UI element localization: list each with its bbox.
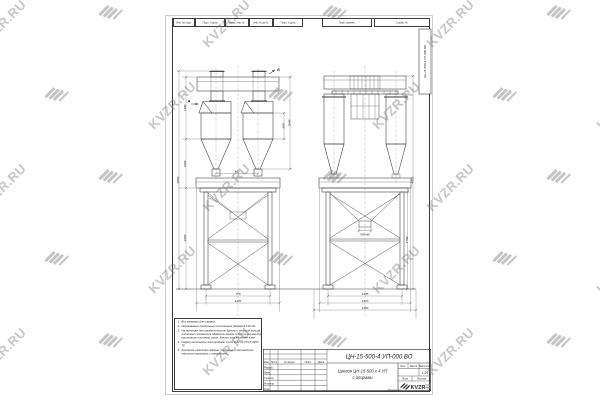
tb-row-utv: Утв. [264,388,270,391]
dim-front-right-upper: 580 [281,123,285,128]
format-label: Формат А3 [388,389,468,395]
tb-designation: ЦН-15-500-4 УП-000 ВО [346,355,413,361]
dim-front-left-2: 1090 [183,160,187,167]
front-view-dims: 1380 1090 2250 4850 580 2040 440 770 117… [176,67,292,312]
dim-front-center: 440 [235,169,240,173]
centerlines [334,66,396,316]
dim-side-hopper-outlet: 850×60 [360,233,370,237]
note-item: 5.Контроль качества сварных соединений п… [177,349,263,356]
section-label-a: А [187,99,191,104]
tb-scale-value: 1:25 [422,371,429,375]
title-block: Изм. Лист № докум. Подп. Дата Разраб. Пр… [263,349,431,391]
centerlines [216,66,258,316]
dim-front-bottom-1: 770 [235,292,240,296]
dim-side-overall: 4850 [410,176,414,183]
tb-mass-label: Масса [410,365,418,368]
watermark-logo-icon [546,331,569,354]
dim-front-left-1: 1380 [183,104,187,111]
tb-col-data: Дата [317,361,325,364]
tb-lit-label: Лит. [399,365,406,368]
tb-col-izm: Изм. [264,361,270,364]
note-item: 3.На монтаже для герметичности бункер и … [177,329,263,340]
notes-box: 1.Все размеры для справок.2.Неуказанные … [174,318,262,390]
tb-row-tkontr: Т.контр. [264,377,274,380]
watermark-logo-icon [98,3,121,26]
tb-name-line2: с опорами [352,375,373,380]
tb-row-prov: Пров. [264,372,271,375]
logo-subtext-smudge [426,387,431,388]
tb-name-line1: Циклон ЦН-15-500 х 4 УП [338,369,389,374]
watermark-text: KVZR.RU [0,0,29,50]
watermark-text: KVZR.RU [594,79,600,132]
section-label-b: Б [277,67,280,72]
watermark-text: KVZR.RU [0,325,29,378]
dim-side-bottom-2: 1470 [362,299,369,303]
tb-row-razrab: Разраб. [264,366,273,369]
watermark-logo-icon [546,3,569,26]
watermark-logo-icon [44,85,67,108]
watermark-logo-icon [44,249,67,272]
note-item: 1.Все размеры для справок. [177,321,263,325]
watermark-logo-icon [492,249,515,272]
note-item: 2.Неуказанные предельные отклонения разм… [177,325,263,329]
dim-front-bottom-2: 1170 [235,299,242,303]
notes-list: 1.Все размеры для справок.2.Неуказанные … [175,319,262,356]
drawing-sheet: Инв. № подл.Подп. и датаВзам. инв. №Инв.… [165,15,433,395]
watermark-logo-icon [546,167,569,190]
note-item: 4.Сварку выполнять электродами типа Э-42… [177,341,263,348]
tb-row-nkontr: Н.контр. [264,383,275,386]
tb-col-podp: Подп. [305,361,312,364]
tb-sheet-label: Лист [401,378,408,381]
front-view [196,66,280,316]
dim-side-right: 1750 [405,236,409,243]
dim-side-bottom-1: 1285 [362,292,369,296]
tb-col-list: Лист [270,361,277,364]
watermark-text: KVZR.RU [594,243,600,296]
watermark-logo-icon [492,85,515,108]
designation-stamp-text: ЦН-15-500-4 УП-000 ВО [423,44,427,78]
tb-scale-label: Масштаб [419,365,431,368]
side-view [319,66,411,316]
dim-side-bottom-3: 1580 [362,306,369,310]
watermark-text: KVZR.RU [0,161,29,214]
tb-col-ndocum: № докум. [284,361,295,364]
tb-sheets-label: Листов [416,378,427,381]
dim-front-overall: 4850 [176,176,180,183]
logo-subtext-smudge [426,385,431,386]
dim-front-left-3: 2250 [183,234,187,242]
watermark-logo-icon [98,167,121,190]
watermark-logo-icon [98,331,121,354]
dim-front-right-lower: 2040 [287,119,291,127]
designation-stamp: ЦН-15-500-4 УП-000 ВО [419,29,431,94]
